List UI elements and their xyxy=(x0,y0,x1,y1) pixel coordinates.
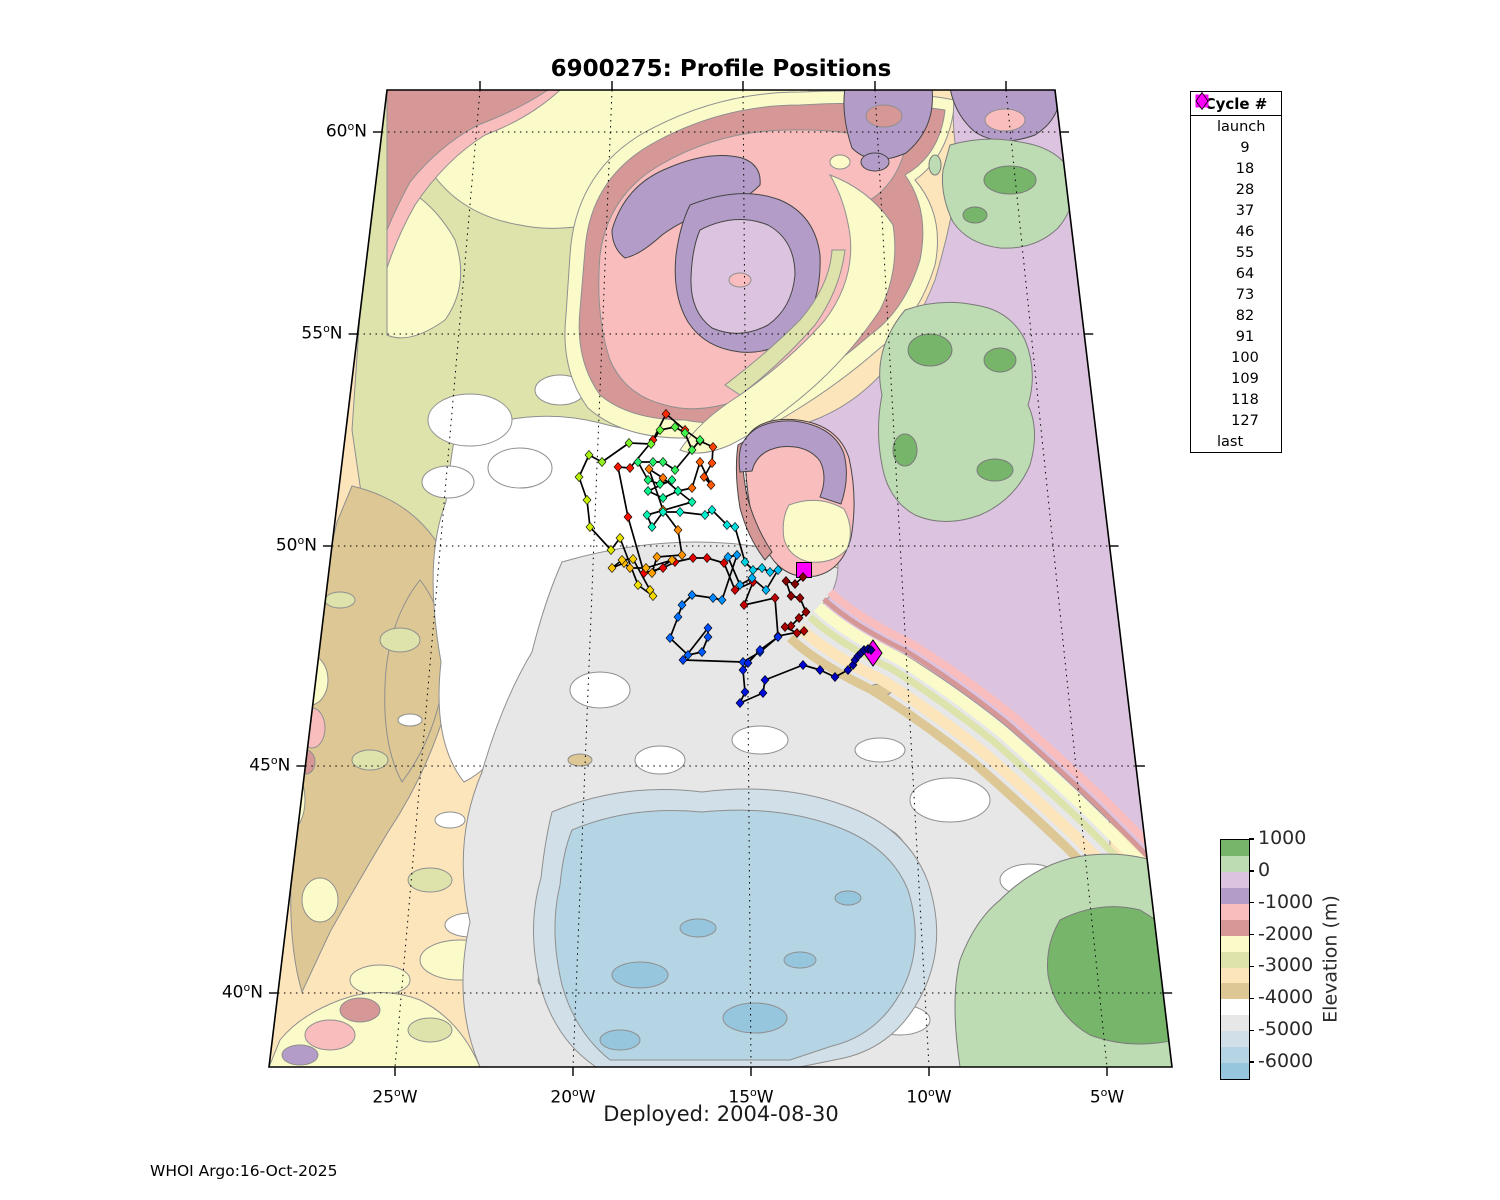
colorbar-tick-label: 1000 xyxy=(1258,827,1306,849)
legend-item-label: 100 xyxy=(1217,350,1281,366)
credit-text: WHOI Argo:16-Oct-2025 xyxy=(150,1162,338,1180)
legend-item-label: 28 xyxy=(1217,182,1281,198)
figure-canvas: 6900275: Profile Positions xyxy=(0,0,1500,1200)
colorbar-axis-label: Elevation (m) xyxy=(1320,840,1342,1079)
lat-tick-label: 45oN xyxy=(234,754,290,776)
colorbar-tick-label: 0 xyxy=(1258,859,1270,881)
legend-item-label: 9 xyxy=(1217,140,1281,156)
colorbar-cell xyxy=(1221,872,1249,888)
colorbar-tick-label: -6000 xyxy=(1258,1050,1313,1072)
colorbar-tick xyxy=(1249,1030,1254,1031)
legend-item-cycle: 55 xyxy=(1191,242,1281,263)
colorbar-tick xyxy=(1249,838,1254,839)
legend-item-cycle: 82 xyxy=(1191,305,1281,326)
colorbar-cell xyxy=(1221,1063,1249,1079)
legend-item-cycle: 37 xyxy=(1191,200,1281,221)
big-diamond-icon xyxy=(1191,92,1213,110)
colorbar-cell xyxy=(1221,983,1249,999)
colorbar-cell xyxy=(1221,952,1249,968)
colorbar-tick-label: -5000 xyxy=(1258,1018,1313,1040)
colorbar-cell xyxy=(1221,840,1249,856)
legend-item-label: 18 xyxy=(1217,161,1281,177)
colorbar-tick xyxy=(1249,966,1254,967)
legend-item-cycle: 100 xyxy=(1191,347,1281,368)
lat-tick-label: 40oN xyxy=(207,981,263,1003)
lat-tick-label: 55oN xyxy=(287,322,343,344)
legend-item-label: 82 xyxy=(1217,308,1281,324)
legend-item-cycle: 46 xyxy=(1191,221,1281,242)
legend-item-label: 46 xyxy=(1217,224,1281,240)
colorbar-tick xyxy=(1249,934,1254,935)
legend-item-label: 37 xyxy=(1217,203,1281,219)
colorbar-cell xyxy=(1221,968,1249,984)
colorbar-tick xyxy=(1249,998,1254,999)
legend-item-label: 73 xyxy=(1217,287,1281,303)
legend-box: Cycle # launch91828374655647382911001091… xyxy=(1190,91,1282,453)
colorbar-tick-label: -2000 xyxy=(1258,923,1313,945)
legend-item-cycle: 91 xyxy=(1191,326,1281,347)
legend-item-cycle: 9 xyxy=(1191,137,1281,158)
colorbar-cell xyxy=(1221,920,1249,936)
legend-item-label: last xyxy=(1217,434,1281,450)
colorbar-cell xyxy=(1221,888,1249,904)
colorbar-cell xyxy=(1221,1047,1249,1063)
colorbar-tick-label: -3000 xyxy=(1258,954,1313,976)
legend-item-label: 127 xyxy=(1217,413,1281,429)
colorbar-cell xyxy=(1221,999,1249,1015)
legend-item-label: 64 xyxy=(1217,266,1281,282)
legend-item-label: 91 xyxy=(1217,329,1281,345)
colorbar-cell xyxy=(1221,1031,1249,1047)
legend-item-cycle: 18 xyxy=(1191,158,1281,179)
legend-item-cycle: 109 xyxy=(1191,368,1281,389)
legend-item-label: launch xyxy=(1217,119,1281,135)
legend-item-label: 109 xyxy=(1217,371,1281,387)
lat-tick-label: 60oN xyxy=(311,120,367,142)
deployed-date-label: Deployed: 2004-08-30 xyxy=(387,1102,1055,1126)
legend-item-label: 118 xyxy=(1217,392,1281,408)
legend-item-cycle: 127 xyxy=(1191,410,1281,431)
lon-tick-label: 5oW xyxy=(1062,1086,1152,1108)
legend-item-last: last xyxy=(1191,431,1281,452)
colorbar-cell xyxy=(1221,904,1249,920)
lat-tick-label: 50oN xyxy=(261,534,317,556)
colorbar-cell xyxy=(1221,856,1249,872)
legend-item-cycle: 64 xyxy=(1191,263,1281,284)
legend-item-cycle: 73 xyxy=(1191,284,1281,305)
colorbar-cell xyxy=(1221,1015,1249,1031)
bathymetry-regions xyxy=(269,88,1180,1067)
colorbar-tick xyxy=(1249,1061,1254,1062)
elevation-colorbar xyxy=(1220,839,1250,1080)
colorbar-cell xyxy=(1221,936,1249,952)
colorbar-tick-label: -4000 xyxy=(1258,986,1313,1008)
legend-item-launch: launch xyxy=(1191,116,1281,137)
colorbar-tick xyxy=(1249,870,1254,871)
colorbar-tick-label: -1000 xyxy=(1258,891,1313,913)
legend-item-cycle: 118 xyxy=(1191,389,1281,410)
legend-item-cycle: 28 xyxy=(1191,179,1281,200)
legend-item-label: 55 xyxy=(1217,245,1281,261)
colorbar-tick xyxy=(1249,902,1254,903)
